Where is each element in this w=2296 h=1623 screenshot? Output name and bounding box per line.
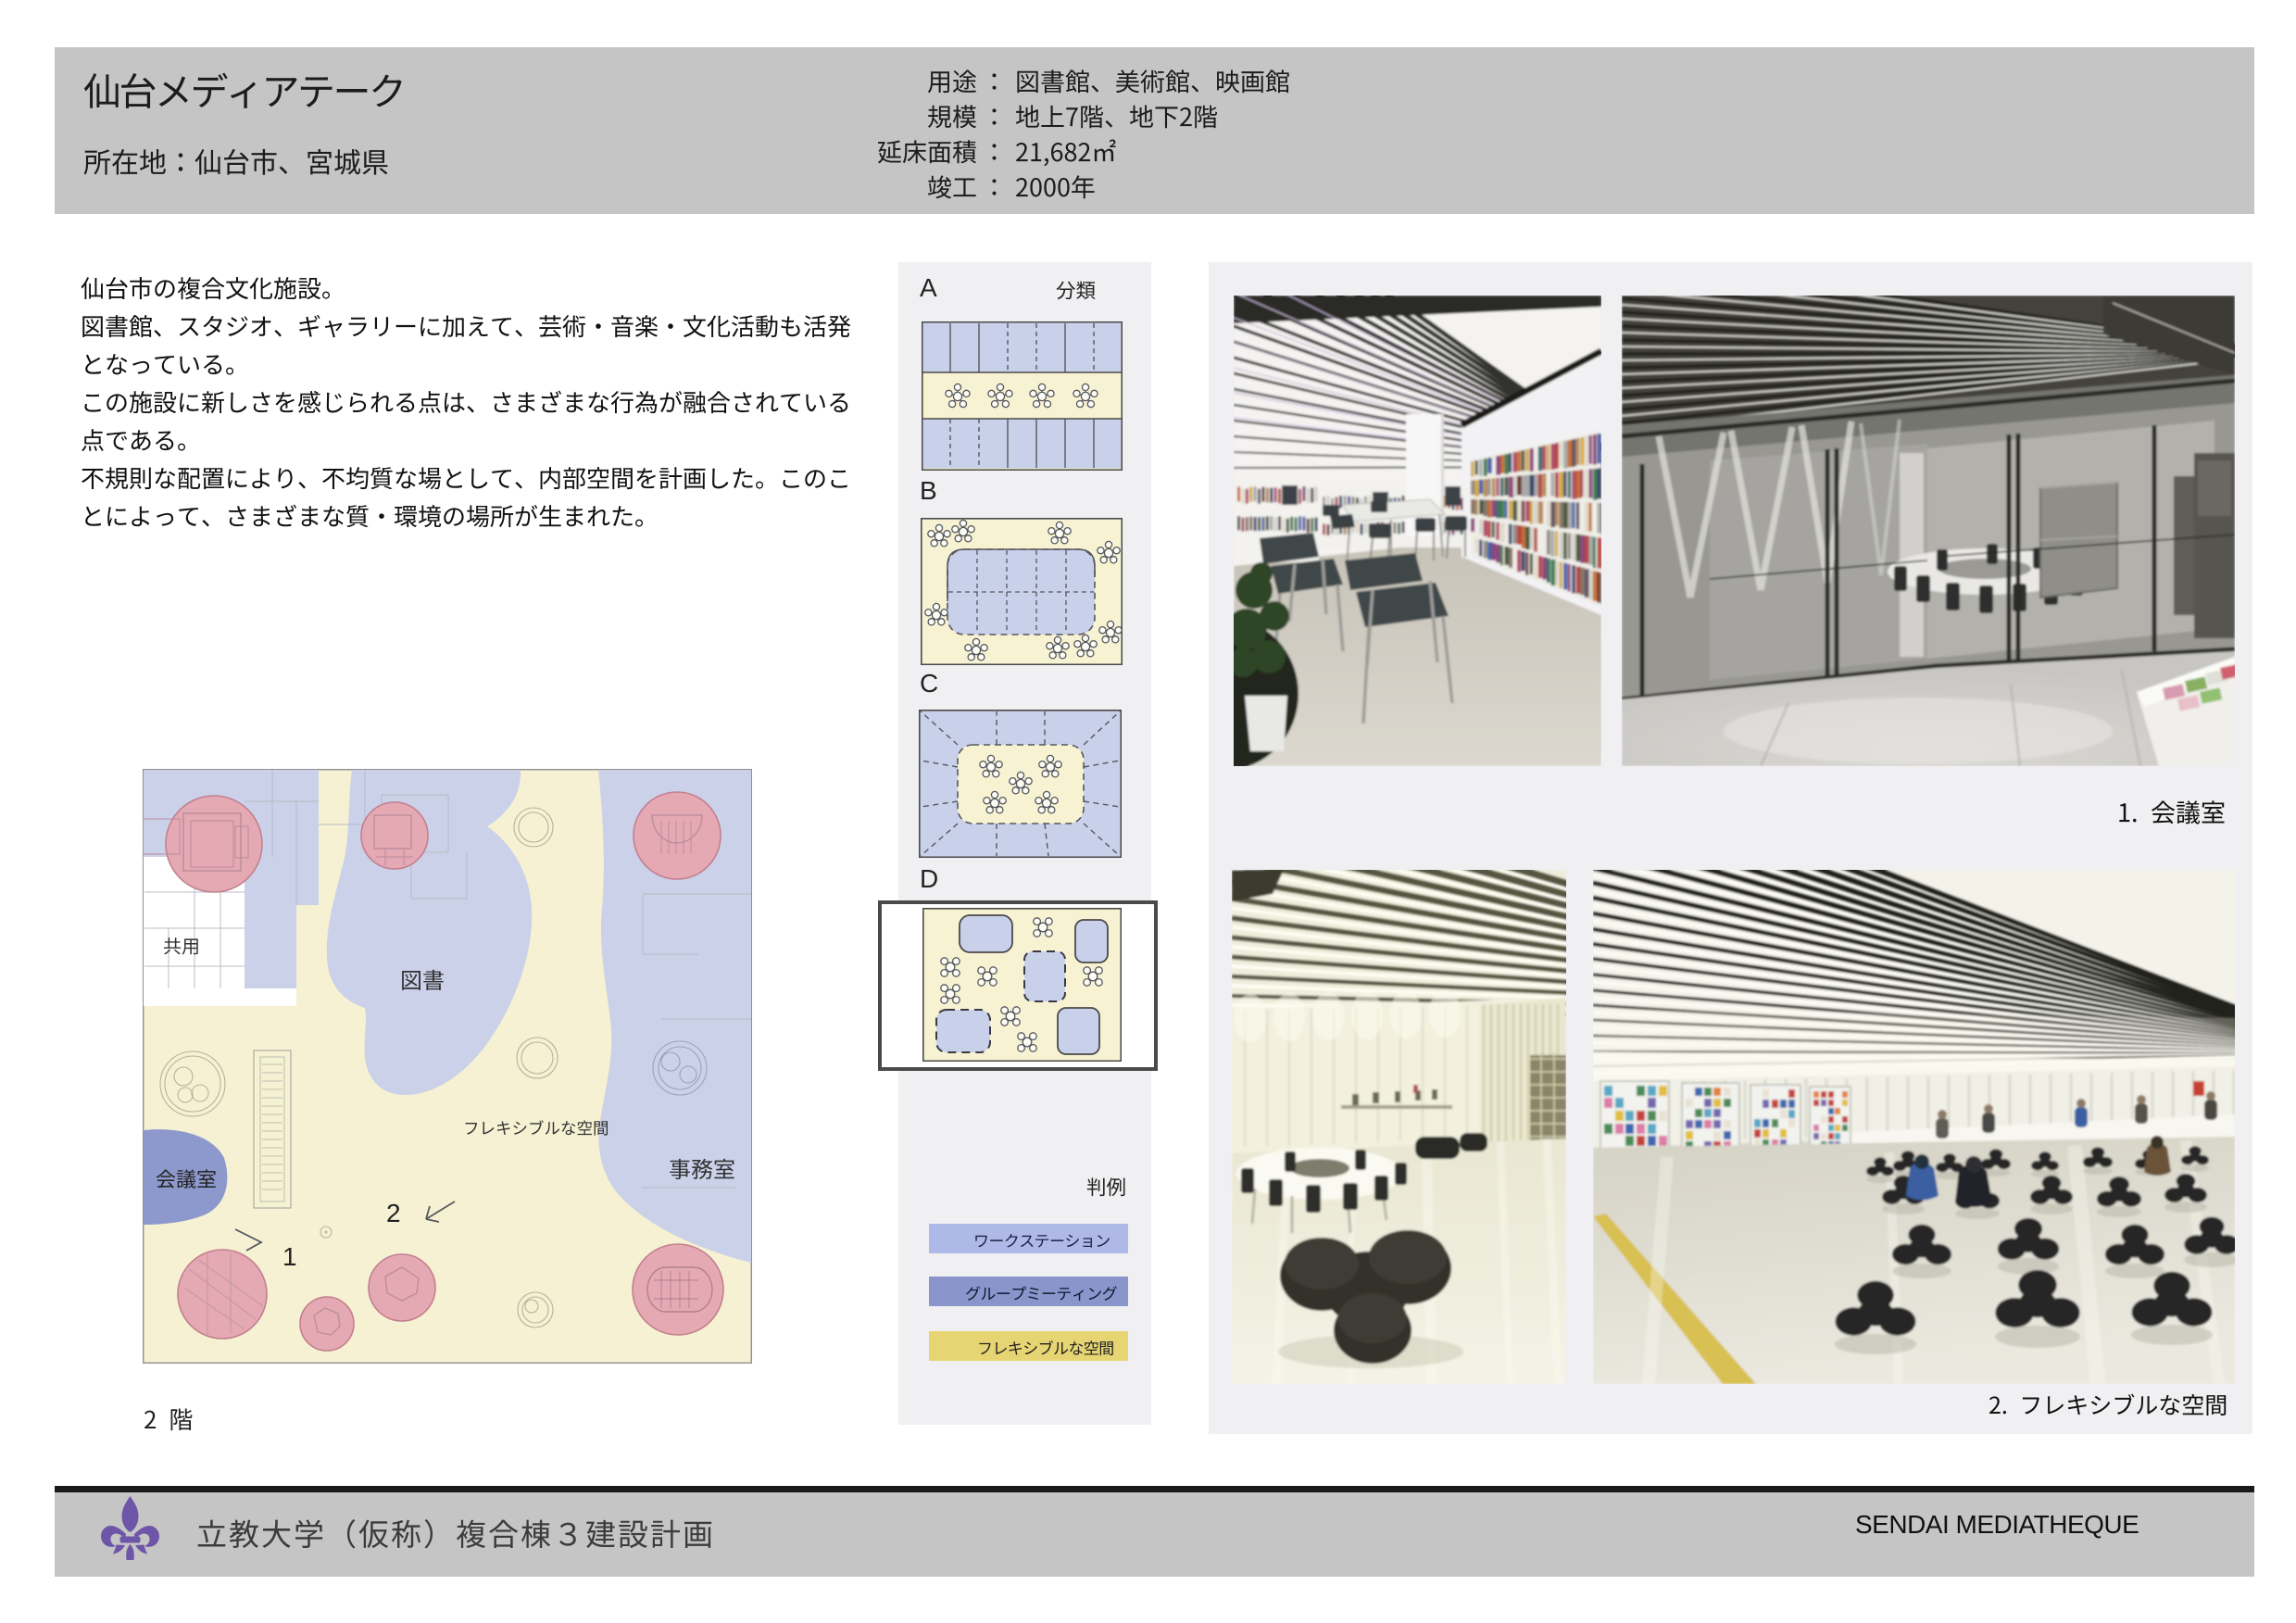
svg-text:2: 2 (386, 1199, 401, 1227)
svg-text:1: 1 (282, 1242, 297, 1271)
